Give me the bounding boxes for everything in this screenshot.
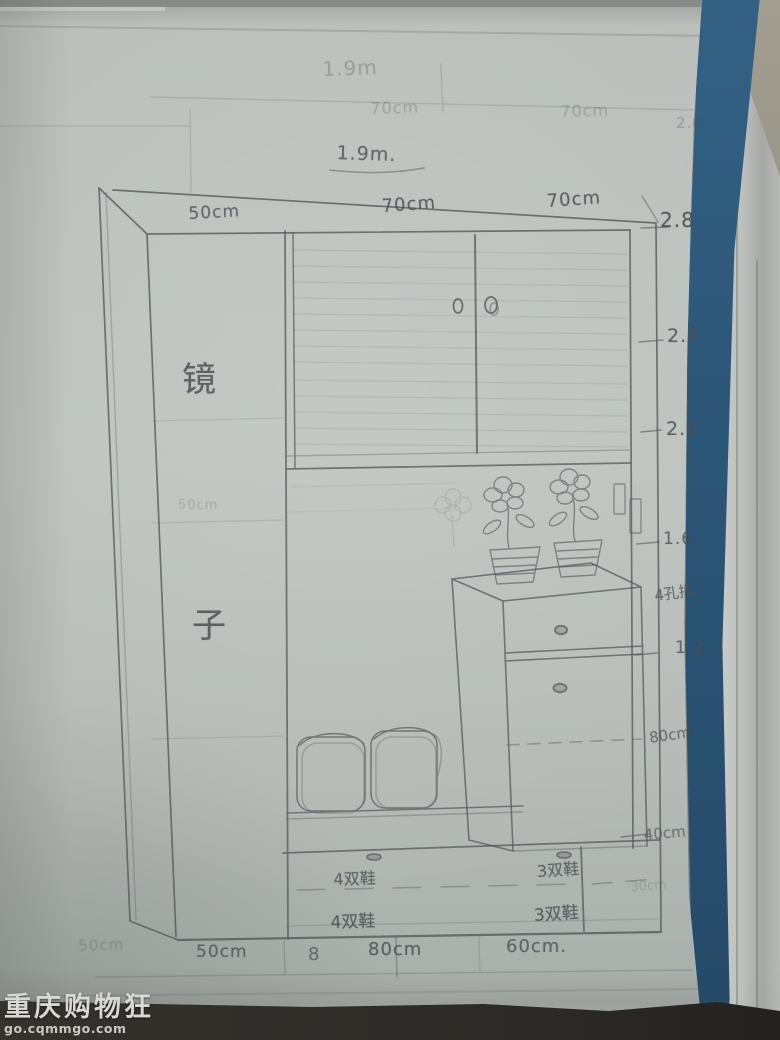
scale-2-4: 2.4 xyxy=(667,325,700,347)
scale-1-6: 1.6 xyxy=(663,529,693,549)
top-dimension-70cm-1: 70cm xyxy=(381,192,437,217)
scale-2-8: 2.8 xyxy=(660,208,695,232)
faint-segment-label-right: 70cm xyxy=(560,100,609,121)
bottom-dimension-60cm: 60cm. xyxy=(506,936,567,957)
mirror-faint-dimension: 50cm xyxy=(178,498,218,513)
right-dimension-40cm: 40cm xyxy=(643,822,686,844)
faint-total-width-label: 1.9m xyxy=(322,55,378,81)
watermark-url: go.cqmmgo.com xyxy=(4,1023,154,1036)
bottom-dimension-80cm: 80cm xyxy=(368,939,422,960)
faint-bottom-dimension: 50cm xyxy=(78,935,125,955)
faint-scale-label-top: 2.0 xyxy=(676,114,703,132)
scale-2-0: 2.0 xyxy=(666,418,699,440)
mirror-character-bottom: 子 xyxy=(192,598,226,647)
shoe-label-row2-left: 4双鞋 xyxy=(330,906,376,933)
total-width-label: 1.9m. xyxy=(336,142,396,166)
watermark: 重庆购物狂 go.cqmmgo.com xyxy=(4,994,154,1036)
top-dimension-50cm: 50cm xyxy=(188,201,241,224)
photo-of-pencil-sketch: 1.9m 70cm 70cm 2.0 1.9m. 50cm 70cm 70cm … xyxy=(0,0,780,1040)
mirror-character-top: 镜 xyxy=(182,352,216,401)
shoe-label-row1-left: 4双鞋 xyxy=(333,865,376,890)
shoe-label-row1-right: 3双鞋 xyxy=(536,855,580,882)
shoe-label-row2-right: 3双鞋 xyxy=(533,898,579,926)
handwritten-labels: 1.9m 70cm 70cm 2.0 1.9m. 50cm 70cm 70cm … xyxy=(0,0,780,1040)
bottom-dimension-50cm: 50cm xyxy=(196,942,248,962)
right-dimension-80cm: 80cm xyxy=(648,723,692,747)
socket-note-label: 4孔插 xyxy=(653,579,695,605)
watermark-title: 重庆购物狂 xyxy=(4,994,154,1021)
top-dimension-70cm-2: 70cm xyxy=(546,187,602,212)
faint-right-dimension: 30cm xyxy=(630,877,667,894)
faint-segment-label-left: 70cm xyxy=(370,97,419,118)
scale-1-2: 1.2 xyxy=(675,638,705,658)
bottom-mark-8: 8 xyxy=(308,944,320,965)
